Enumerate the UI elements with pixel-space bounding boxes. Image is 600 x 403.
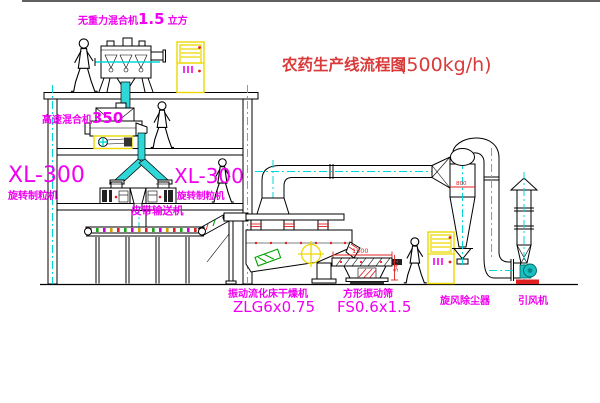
indicator-dot [198, 46, 201, 49]
mixer2-discharge-pipe [138, 133, 145, 160]
feed-trough [207, 213, 248, 284]
cad-drawing: 农药生产线流程图 (500kg/h) 无重力混合机1.5立方 高速混合机350 … [0, 0, 600, 403]
dryer-nozzles [250, 220, 329, 230]
label-granulator-model-1: XL-300 [8, 163, 85, 188]
granulator-right [146, 182, 176, 204]
cyclone-top-cap [451, 149, 475, 166]
process-flow-diagram: 农药生产线流程图 (500kg/h) 无重力混合机1.5立方 高速混合机350 … [0, 0, 600, 403]
fan-base [516, 280, 539, 285]
dim-sieve-height: 541 [392, 260, 400, 272]
label-dryer-model: ZLG6x0.75 [233, 298, 315, 316]
control-cabinet-right [428, 232, 454, 284]
induced-draft-fan [514, 263, 540, 284]
indicator-dot [449, 236, 452, 239]
y-splitter-pipe [110, 159, 172, 184]
conveyor-legs [96, 237, 189, 284]
diagram-title: 农药生产线流程图 [281, 55, 406, 74]
label-belt-conveyor: 皮带输送机 [130, 204, 184, 217]
label-fan: 引风机 [518, 294, 548, 307]
label-sieve-model: FS0.6x1.5 [337, 298, 411, 316]
label-gravity-mixer: 无重力混合机1.5立方 [77, 10, 188, 28]
indicator-dot [449, 261, 452, 264]
indicator-dot [198, 70, 201, 73]
diagram-capacity: (500kg/h) [399, 54, 492, 76]
dim-cyclone-width: 800 [456, 181, 467, 187]
dim-sieve-length: 1500 [352, 247, 369, 255]
granulator-left [100, 182, 130, 204]
fluid-bed-dryer [246, 214, 360, 283]
person-icon [71, 39, 98, 91]
label-granulator-model-2: XL-300 [174, 164, 244, 188]
person-icon [404, 238, 427, 283]
belt-conveyor [85, 213, 249, 284]
label-granulator-name-2: 旋转制粒机 [176, 190, 225, 202]
control-cabinet-top [177, 42, 204, 93]
exhaust-duct [255, 160, 448, 214]
person-icon [151, 102, 174, 148]
label-cyclone: 旋风除尘器 [439, 294, 491, 307]
label-granulator-name-1: 旋转制粒机 [7, 189, 58, 202]
title-group: 农药生产线流程图 (500kg/h) [281, 54, 492, 76]
